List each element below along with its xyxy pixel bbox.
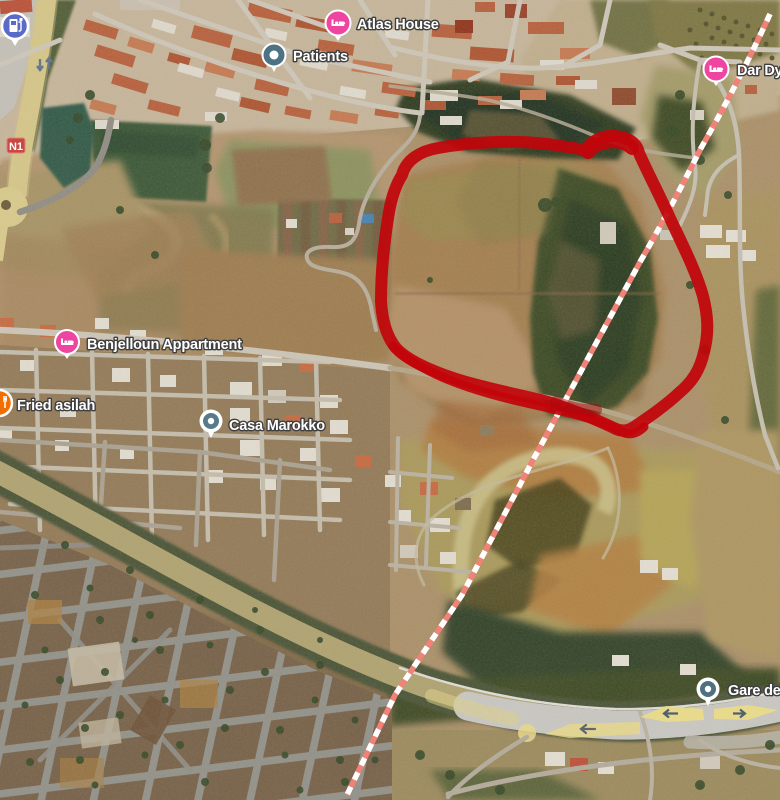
svg-text:Gare de: Gare de: [728, 683, 780, 699]
svg-text:Atlas House: Atlas House: [357, 17, 439, 33]
svg-text:Dar Dy: Dar Dy: [737, 63, 780, 79]
svg-text:Benjelloun Appartment: Benjelloun Appartment: [87, 337, 242, 353]
svg-text:Patients: Patients: [293, 49, 348, 65]
svg-text:N1: N1: [9, 141, 23, 153]
svg-text:Casa Marokko: Casa Marokko: [229, 418, 325, 434]
svg-text:Fried asilah: Fried asilah: [17, 398, 95, 414]
